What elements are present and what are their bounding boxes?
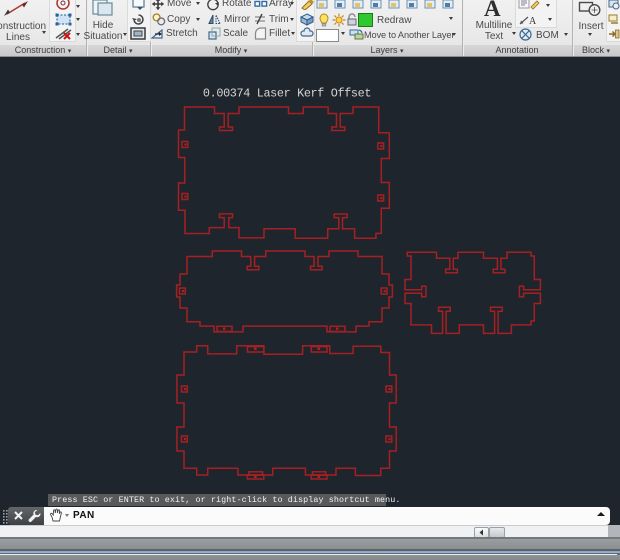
svg-text:0.00374 Laser Kerf Offset: 0.00374 Laser Kerf Offset (203, 87, 371, 101)
svg-text:A: A (529, 16, 537, 26)
